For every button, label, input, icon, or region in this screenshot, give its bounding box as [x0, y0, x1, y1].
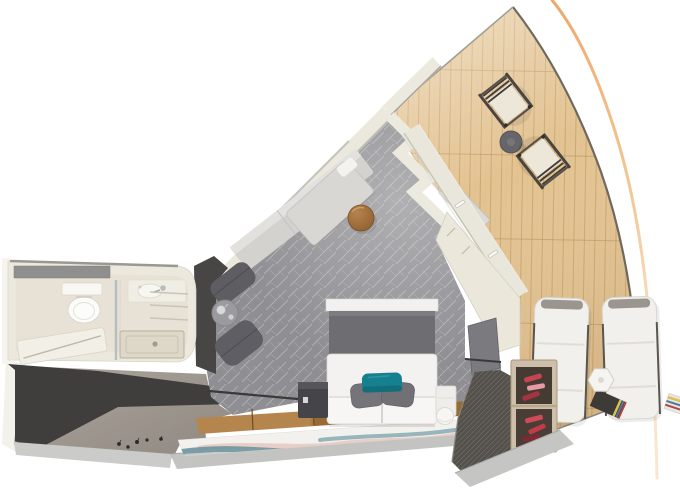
drain	[152, 341, 157, 346]
faucet	[160, 285, 166, 291]
nightstand-left	[298, 382, 328, 418]
kettle	[217, 306, 226, 315]
cup	[228, 314, 233, 319]
washbasin	[128, 280, 186, 302]
tea-table	[212, 300, 238, 326]
tv-panel	[468, 318, 500, 375]
screenshot-root	[0, 0, 680, 491]
mirror	[14, 266, 110, 278]
floorplan-render-canvas	[0, 0, 680, 491]
pillow-teal	[362, 372, 403, 392]
bathroom	[2, 258, 196, 365]
headboard	[329, 311, 435, 355]
towel-stack-edge	[664, 393, 680, 414]
shower-tray	[120, 331, 184, 358]
headboard-trim	[326, 299, 438, 311]
round-stool	[437, 408, 454, 425]
